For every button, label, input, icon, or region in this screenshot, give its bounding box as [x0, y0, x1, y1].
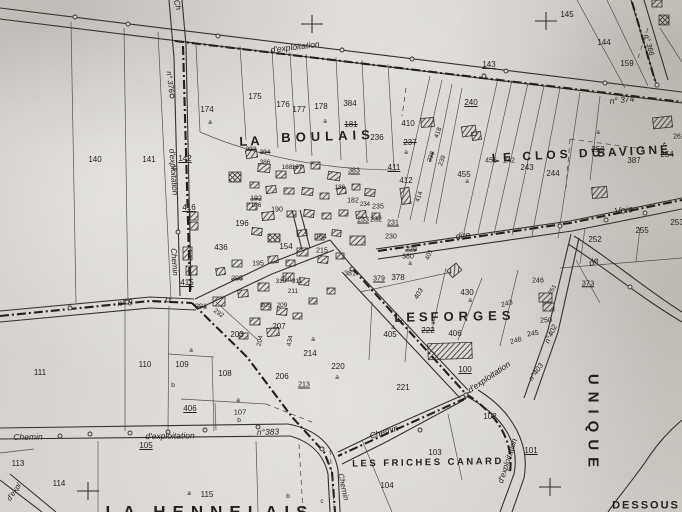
- sub-label-a-7: a: [391, 325, 395, 332]
- num-label-384-8: 384: [343, 100, 356, 108]
- num-label-176-5: 176: [276, 101, 289, 109]
- num-label-456-21: 456: [485, 158, 497, 165]
- num-label-206-76: 206: [275, 373, 288, 381]
- num-label-159-14: 159: [620, 60, 633, 68]
- num-label-203-75: 203: [230, 331, 243, 339]
- num-label-235-46: 235: [372, 204, 384, 211]
- num-label-182-44: 182: [347, 198, 359, 205]
- num-label-195-61: 195: [252, 261, 264, 268]
- num-label-378-56: 378: [391, 274, 404, 282]
- num-label-230-53: 230: [385, 234, 397, 241]
- num-label-254-19: 254: [660, 151, 673, 159]
- num-label-187-38: 187: [292, 165, 303, 172]
- num-label-240-15: 240: [464, 99, 477, 107]
- sub-label-a-1: a: [323, 119, 327, 126]
- num-label-184-48: 184: [315, 234, 327, 241]
- buildings: [183, 0, 673, 360]
- num-label-102-97: 102: [483, 413, 496, 421]
- num-label-104-99: 104: [380, 482, 393, 490]
- num-label-242-22: 242: [503, 158, 515, 165]
- num-label-113-107: 113: [12, 460, 25, 468]
- num-label-215-49: 215: [316, 248, 328, 255]
- place-label-les-friches-canard-6: LES FRICHES CANARD: [352, 457, 504, 469]
- num-label-141-1: 141: [142, 156, 155, 164]
- num-label-231-52: 231: [387, 220, 399, 227]
- num-label-221-80: 221: [396, 384, 409, 392]
- place-label-forges-5: FORGES: [430, 309, 515, 323]
- num-label-252-93: 252: [588, 236, 601, 244]
- num-label-105-110: 105: [139, 442, 152, 450]
- num-label-386-36: 386: [260, 160, 271, 167]
- num-label-232-51: 232: [370, 217, 382, 224]
- sub-label-b-12: b: [171, 383, 175, 390]
- num-label-110-102: 110: [139, 361, 152, 369]
- num-label-234-45: 234: [360, 202, 370, 208]
- num-label-213-77: 213: [298, 382, 310, 389]
- num-label-174-3: 174: [200, 106, 213, 114]
- place-label-les-4: LES: [394, 310, 432, 324]
- road-label-n-8-7: n° 8: [117, 298, 133, 308]
- num-label-295-62: 295: [231, 276, 243, 283]
- num-label-412-27: 412: [399, 177, 412, 185]
- road-label-n-376-4: n° 376: [165, 71, 175, 94]
- num-label-379-57: 379: [373, 276, 385, 283]
- num-label-190-43: 190: [271, 207, 283, 214]
- num-label-114-108: 114: [53, 480, 66, 488]
- cadastral-map-scan: LABOULAISLE CLOS DUSAVIGNÉLESFORGESLES F…: [0, 0, 682, 512]
- survey-points: [58, 15, 659, 451]
- num-label-406-85: 406: [448, 330, 461, 338]
- num-label-181-9: 181: [344, 121, 357, 129]
- num-label-209-71: 209: [277, 303, 288, 310]
- num-label-405-83: 405: [383, 331, 396, 339]
- num-label-255-94: 255: [635, 227, 648, 235]
- num-label-140-0: 140: [88, 156, 101, 164]
- num-label-222-84: 222: [421, 327, 434, 335]
- num-label-253-18: 253: [591, 146, 604, 154]
- place-label-la-hennelais-7: LA HENNELAIS: [106, 504, 315, 512]
- num-label-406-105: 406: [183, 405, 196, 413]
- num-label-142-2: 142: [178, 155, 191, 163]
- num-label-177-6: 177: [292, 106, 305, 114]
- sub-label-a-8: a: [311, 337, 315, 344]
- num-label-236-10: 236: [370, 134, 383, 142]
- num-label-111-101: 111: [34, 369, 46, 377]
- num-label-237-17: 237: [403, 139, 416, 147]
- sub-label-c-17: c: [320, 499, 323, 506]
- num-label-250-89: 250: [540, 318, 552, 325]
- place-label-boulais-1: BOULAIS: [281, 128, 375, 144]
- num-label-186-40: 186: [335, 185, 346, 192]
- survey-cross: [535, 12, 557, 30]
- num-label-143-11: 143: [482, 61, 495, 69]
- num-label-100-81: 100: [458, 366, 471, 374]
- num-label-205-70: 205: [261, 303, 272, 310]
- sub-label-b-14: b: [237, 418, 241, 425]
- num-label-211-69: 211: [288, 289, 298, 296]
- num-label-233-50: 233: [357, 217, 369, 224]
- sub-label-a-5: a: [468, 298, 472, 305]
- num-label-210-68: 210: [281, 277, 292, 284]
- num-label-115-109: 115: [201, 491, 214, 499]
- num-label-393-34: 393: [246, 147, 257, 154]
- num-label-154-60: 154: [279, 243, 292, 251]
- num-label-144-13: 144: [597, 39, 610, 47]
- sub-label-a-0: a: [208, 120, 212, 127]
- num-label-373-92: 373: [582, 279, 595, 287]
- survey-cross: [77, 482, 99, 500]
- num-label-311-64: 311: [292, 279, 302, 286]
- num-label-246-87: 246: [532, 278, 544, 285]
- num-label-107-106: 107: [234, 408, 247, 416]
- num-label-381-58: 381: [344, 271, 356, 278]
- sub-label-a-6: a: [431, 320, 435, 327]
- num-label-220-79: 220: [331, 363, 344, 371]
- road-label-d-exploitation-9: d'exploitation: [145, 431, 195, 440]
- place-label-dessous-9: DESSOUS: [612, 501, 680, 512]
- road-label-chemin-6: Chemin: [169, 248, 179, 276]
- num-label-101-100: 101: [524, 447, 537, 455]
- num-label-383-39: 383: [348, 168, 360, 175]
- sub-label-a-2: a: [404, 150, 408, 157]
- num-label-394-35: 394: [260, 150, 271, 157]
- num-label-108-104: 108: [218, 370, 231, 378]
- num-label-261-96: 261: [673, 134, 682, 141]
- num-label-178-7: 178: [314, 103, 327, 111]
- num-label-196-47: 196: [235, 220, 248, 228]
- road-label-n-383-10: n°383: [257, 427, 280, 436]
- num-label-411-26: 411: [388, 164, 401, 172]
- place-label-unique-8: UNIQUE: [586, 374, 601, 474]
- map-line-work: [0, 0, 682, 512]
- sub-label-a-13: a: [236, 398, 240, 405]
- sub-label-a-15: a: [187, 491, 191, 498]
- sub-label-a-9: a: [335, 375, 339, 382]
- sub-label-a-10: a: [408, 261, 412, 268]
- num-label-186-42: 186: [251, 203, 262, 210]
- num-label-387-20: 387: [627, 157, 640, 165]
- survey-cross: [539, 478, 561, 496]
- num-label-175-4: 175: [248, 93, 261, 101]
- num-label-436-29: 436: [214, 244, 227, 252]
- num-label-253-95: 253: [670, 219, 682, 227]
- survey-cross: [301, 15, 323, 33]
- num-label-243-23: 243: [520, 164, 533, 172]
- num-label-415-65: 415: [180, 279, 193, 287]
- num-label-244-24: 244: [546, 170, 559, 178]
- num-label-109-103: 109: [175, 361, 188, 369]
- sub-label-a-3: a: [465, 179, 469, 186]
- num-label-416-28: 416: [182, 204, 195, 212]
- num-label-410-16: 410: [401, 120, 414, 128]
- num-label-207-72: 207: [272, 323, 285, 331]
- sub-label-a-4: a: [596, 130, 600, 137]
- sub-label-b-16: b: [286, 494, 290, 501]
- num-label-291-66: 291: [195, 304, 207, 311]
- num-label-214-78: 214: [303, 350, 316, 358]
- num-label-145-12: 145: [560, 11, 573, 19]
- sub-label-a-11: a: [189, 348, 193, 355]
- num-label-229-54: 229: [405, 247, 417, 254]
- road-label-chemin-8: Chemin: [13, 432, 42, 441]
- num-label-103-98: 103: [428, 449, 441, 457]
